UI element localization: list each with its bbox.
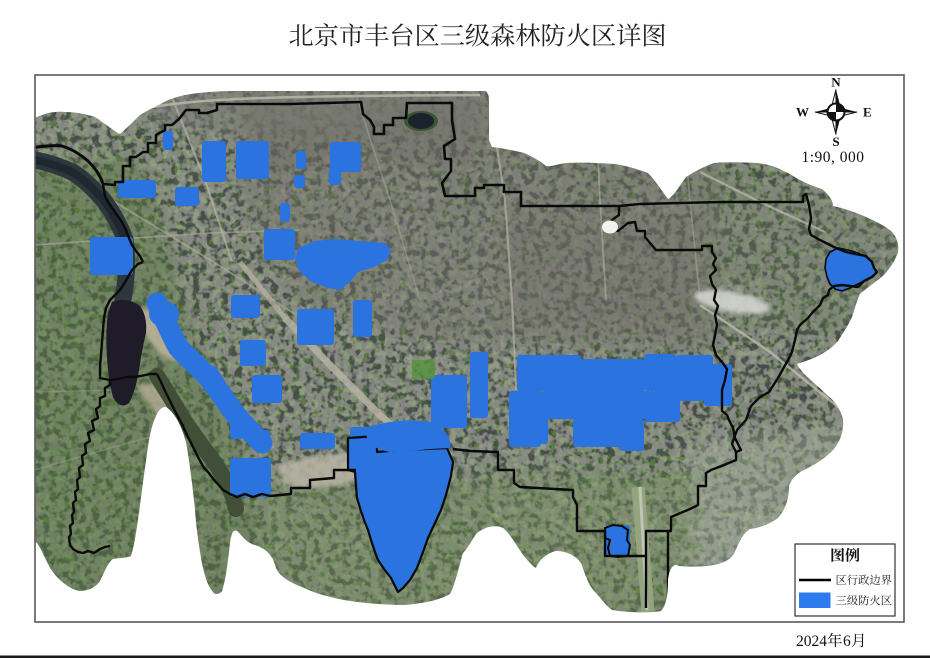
svg-text:W: W bbox=[796, 105, 809, 120]
svg-text:E: E bbox=[863, 105, 872, 120]
svg-text:N: N bbox=[831, 75, 841, 90]
svg-text:6: 6 bbox=[843, 633, 851, 650]
svg-text:1:90, 000: 1:90, 000 bbox=[801, 149, 864, 166]
svg-text:S: S bbox=[832, 134, 839, 149]
svg-text:2024: 2024 bbox=[796, 633, 827, 650]
